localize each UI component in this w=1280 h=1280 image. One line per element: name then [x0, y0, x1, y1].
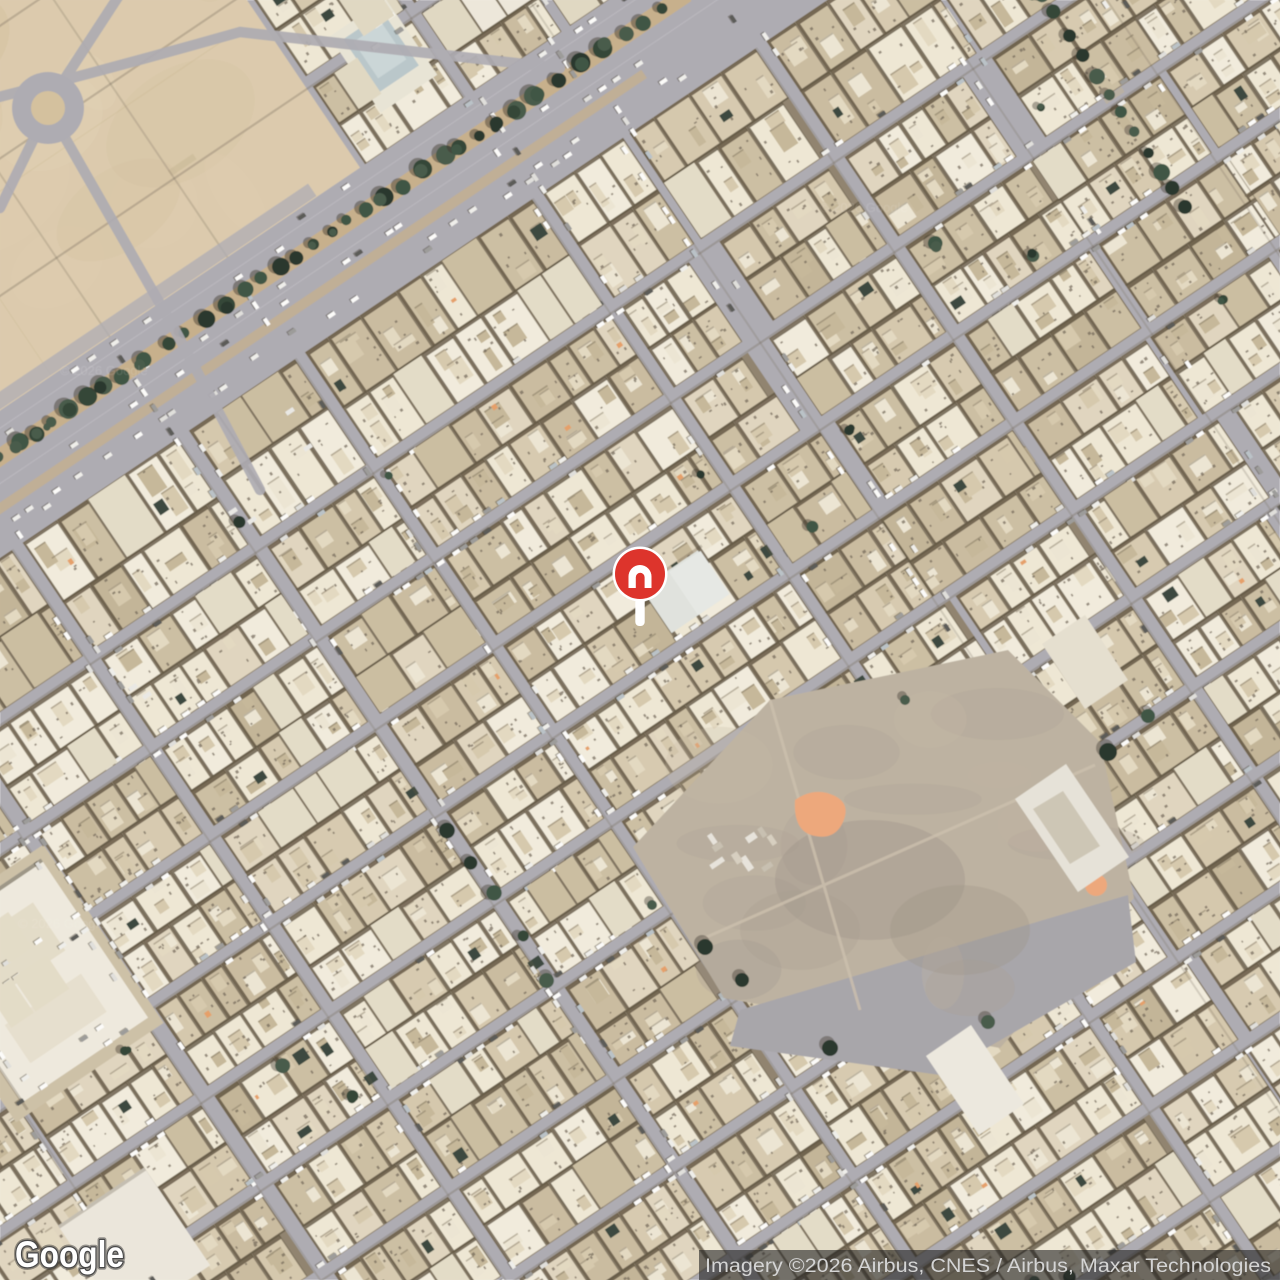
svg-text:Imagery ©2026 Airbus, CNES / A: Imagery ©2026 Airbus, CNES / Airbus, Max… — [705, 1256, 1271, 1277]
svg-text:Google: Google — [15, 1234, 124, 1275]
